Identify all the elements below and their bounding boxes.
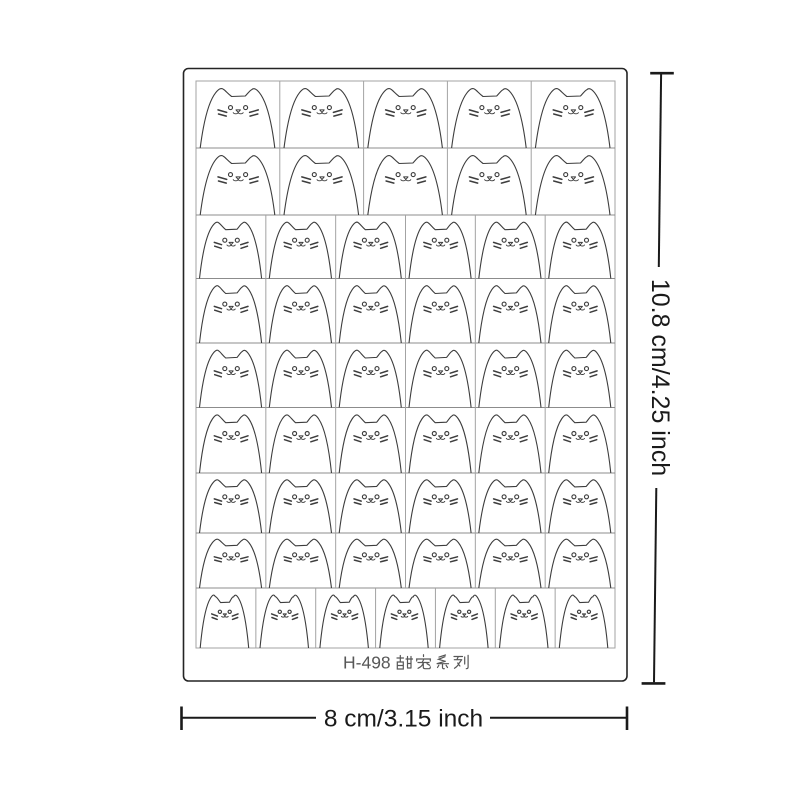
svg-text:H-498: H-498 (343, 653, 391, 673)
svg-text:8 cm/3.15 inch: 8 cm/3.15 inch (324, 705, 483, 732)
svg-text:10.8 cm/4.25 inch: 10.8 cm/4.25 inch (646, 279, 674, 476)
